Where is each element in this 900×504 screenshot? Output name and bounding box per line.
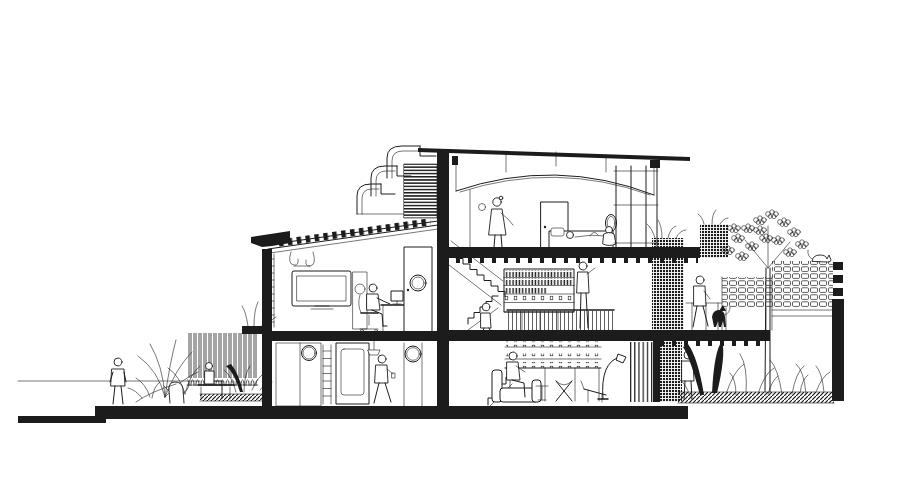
section-wall-left: [262, 249, 272, 407]
terrace-walker: [693, 276, 710, 327]
section-drawing: Sectional perspective drawing of a three…: [0, 0, 900, 504]
slat-screen: [628, 342, 654, 402]
cut-wall-right: [653, 341, 660, 402]
clerestory-vaults: Stepped vault eaves with louvred screen: [357, 146, 443, 218]
ground-room: Ground-floor room with porthole doors, l…: [276, 341, 422, 406]
room-ladder: [323, 345, 331, 404]
screen-top-plants: [647, 220, 686, 238]
architectural-section-page: Sectional perspective drawing of a three…: [0, 0, 900, 504]
stair-railing: [507, 310, 614, 330]
tower-wall: [437, 149, 449, 407]
perforated-screen: [652, 238, 684, 330]
garden-plants: [680, 341, 830, 396]
staircase: Central staircase with climbing figure: [449, 241, 512, 406]
rooftop-cat: [808, 250, 831, 262]
bedroom: Top-floor bedroom with bed, mirror and f…: [470, 166, 658, 252]
pin-panel: [353, 272, 367, 329]
louver-screen: [404, 164, 437, 218]
living-room: Ground-floor living room with sofa, chai…: [492, 341, 694, 402]
floor-slab-left: [262, 331, 449, 341]
butterfly-chair: [556, 381, 572, 401]
media-room: First-floor media room with wall-mounted…: [266, 218, 438, 332]
standing-parent: [489, 196, 513, 247]
street-pedestrian: [110, 358, 126, 404]
terrace-slab: [437, 330, 770, 341]
sleeping-figure: [567, 232, 574, 239]
breezeblock-fence: [772, 261, 833, 308]
canopy-roof: Flat canopy over curved vault roof: [418, 148, 690, 195]
garden-wall: [832, 299, 844, 401]
wardrobe: [276, 343, 321, 406]
arc-lamp: [598, 354, 626, 399]
hanging-hooks: [290, 252, 315, 266]
picket-fence: [187, 333, 258, 386]
garden-ground: [678, 392, 834, 403]
phone-walker: [374, 355, 395, 403]
office-worker: [359, 284, 390, 333]
ceiling-pendant: [368, 341, 380, 355]
tv-screen: [292, 271, 351, 309]
monitor: [391, 291, 403, 301]
left-wing: First-floor media room with wall-mounted…: [242, 218, 449, 407]
ground-line: [18, 406, 688, 423]
porthole-door: [404, 247, 432, 332]
wall-cut-marks: [833, 262, 843, 296]
terrace: Planted terrace behind perforated brick …: [647, 210, 772, 330]
hedge-planter: [700, 224, 728, 258]
drain-grate: [200, 394, 270, 401]
streetscape: Street side with pedestrian, palm planti…: [18, 333, 272, 404]
terrace-dog: [712, 305, 730, 327]
glazed-facade: [614, 166, 658, 247]
terrace-fence: [722, 277, 772, 308]
porthole-window: [405, 346, 421, 362]
roof-rafters: [275, 218, 430, 247]
